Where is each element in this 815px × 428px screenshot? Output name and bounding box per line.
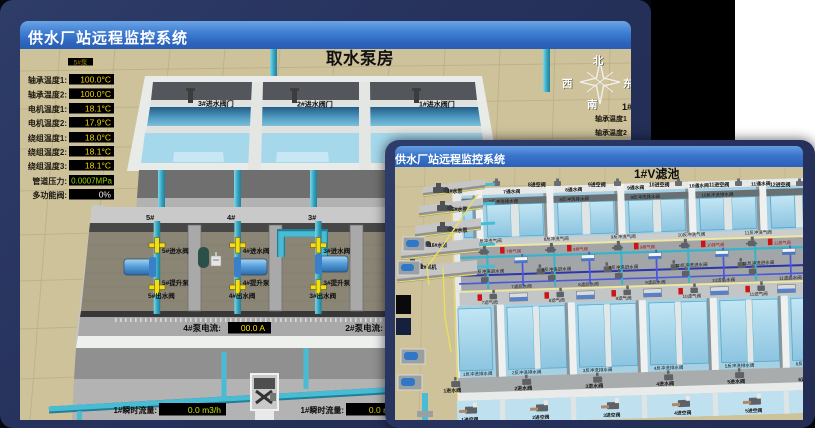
svg-text:南: 南	[587, 98, 598, 111]
svg-text:5#提升泵: 5#提升泵	[162, 278, 189, 287]
svg-text:4#出水阀: 4#出水阀	[229, 291, 256, 300]
svg-text:3#: 3#	[308, 213, 317, 222]
svg-text:1进水阀: 1进水阀	[443, 387, 461, 395]
svg-text:18.1°C: 18.1°C	[85, 147, 111, 157]
svg-text:5#进水阀: 5#进水阀	[162, 246, 189, 255]
svg-text:6进水阀: 6进水阀	[798, 376, 803, 384]
svg-text:取水泵房: 取水泵房	[326, 49, 394, 68]
svg-text:8进空阀: 8进空阀	[528, 182, 546, 189]
svg-text:2#泵电流:: 2#泵电流:	[345, 323, 383, 333]
svg-text:4#泵电流:: 4#泵电流:	[183, 323, 221, 333]
svg-text:10进空阀: 10进空阀	[649, 182, 670, 189]
svg-text:0.0007MPa: 0.0007MPa	[71, 177, 112, 186]
svg-text:2进水阀: 2进水阀	[514, 385, 532, 393]
svg-text:3#出水阀: 3#出水阀	[309, 291, 336, 300]
svg-text:12进空阀: 12进空阀	[770, 182, 791, 189]
svg-text:0.0 m3/h: 0.0 m3/h	[188, 405, 221, 415]
svg-text:5#: 5#	[146, 213, 155, 222]
svg-text:电机温度2:: 电机温度2:	[28, 118, 67, 128]
svg-text:绕组温度3:: 绕组温度3:	[28, 161, 67, 171]
svg-text:5进水阀: 5进水阀	[727, 378, 745, 386]
svg-text:4进水阀: 4进水阀	[656, 380, 674, 388]
svg-text:3进水阀: 3进水阀	[585, 382, 603, 390]
svg-text:9进空阀: 9进空阀	[588, 182, 606, 189]
svg-text:西: 西	[562, 78, 573, 90]
svg-text:3#提升泵: 3#提升泵	[323, 278, 350, 287]
svg-text:绕组温度2:: 绕组温度2:	[28, 147, 67, 157]
svg-text:3#进水阀: 3#进水阀	[323, 246, 350, 255]
svg-text:轴承温度1:: 轴承温度1:	[28, 75, 67, 85]
svg-text:1#水泵: 1#水泵	[447, 188, 464, 195]
svg-text:1#瞬时流量:: 1#瞬时流量:	[113, 405, 157, 415]
svg-text:4#: 4#	[227, 213, 236, 222]
svg-text:电机温度1:: 电机温度1:	[28, 104, 67, 114]
svg-text:00.0 A: 00.0 A	[241, 323, 265, 333]
svg-text:3#进水阀门: 3#进水阀门	[198, 99, 234, 108]
svg-text:4#进水阀: 4#进水阀	[243, 246, 270, 255]
svg-text:5#泵: 5#泵	[74, 59, 88, 67]
svg-text:18.0°C: 18.0°C	[85, 133, 111, 143]
svg-text:1#V滤池: 1#V滤池	[634, 167, 679, 181]
svg-text:多功能阀:: 多功能阀:	[32, 190, 67, 200]
svg-text:轴承温度2:: 轴承温度2:	[28, 89, 67, 99]
svg-text:1#: 1#	[622, 102, 631, 112]
svg-text:100.0°C: 100.0°C	[80, 89, 111, 99]
svg-text:北: 北	[593, 54, 604, 67]
svg-text:6反冲洗排水阀: 6反冲洗排水阀	[796, 359, 803, 367]
svg-text:5#出水阀: 5#出水阀	[148, 291, 175, 300]
svg-text:轴承温度2: 轴承温度2	[595, 128, 627, 137]
svg-text:轴承温度1: 轴承温度1	[595, 114, 627, 123]
svg-text:1#进水阀门: 1#进水阀门	[419, 100, 455, 109]
svg-text:1#瞬时流量:: 1#瞬时流量:	[300, 405, 344, 415]
svg-text:18.1°C: 18.1°C	[85, 104, 111, 114]
svg-text:0%: 0%	[99, 190, 112, 200]
svg-text:17.9°C: 17.9°C	[85, 118, 111, 128]
svg-text:管道压力:: 管道压力:	[32, 176, 67, 186]
svg-text:东: 东	[623, 77, 631, 90]
svg-text:18.1°C: 18.1°C	[85, 161, 111, 171]
svg-text:11进空阀: 11进空阀	[709, 182, 729, 189]
svg-text:2#进水阀门: 2#进水阀门	[297, 100, 333, 109]
svg-text:4#提升泵: 4#提升泵	[243, 278, 270, 287]
svg-text:100.0°C: 100.0°C	[80, 75, 111, 85]
svg-text:绕组温度1:: 绕组温度1:	[28, 133, 67, 143]
